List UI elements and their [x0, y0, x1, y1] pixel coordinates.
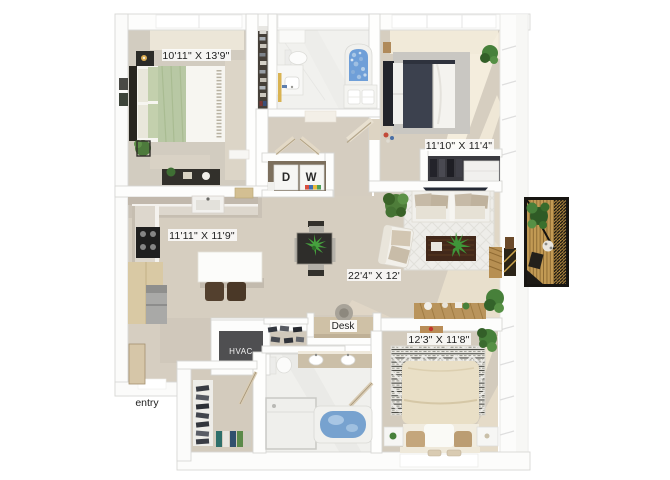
svg-text:D: D: [282, 172, 290, 184]
svg-text:entry: entry: [135, 397, 159, 409]
svg-text:10'11" X 13'9": 10'11" X 13'9": [162, 50, 229, 62]
svg-text:22'4" X 12': 22'4" X 12': [348, 270, 400, 282]
svg-text:12'3" X 11'8": 12'3" X 11'8": [408, 334, 469, 346]
svg-text:Desk: Desk: [332, 321, 356, 332]
svg-text:W: W: [306, 172, 317, 184]
svg-text:11'10" X 11'4": 11'10" X 11'4": [426, 140, 492, 152]
svg-text:11'11" X 11'9": 11'11" X 11'9": [169, 230, 235, 242]
svg-text:HVAC: HVAC: [229, 347, 253, 356]
